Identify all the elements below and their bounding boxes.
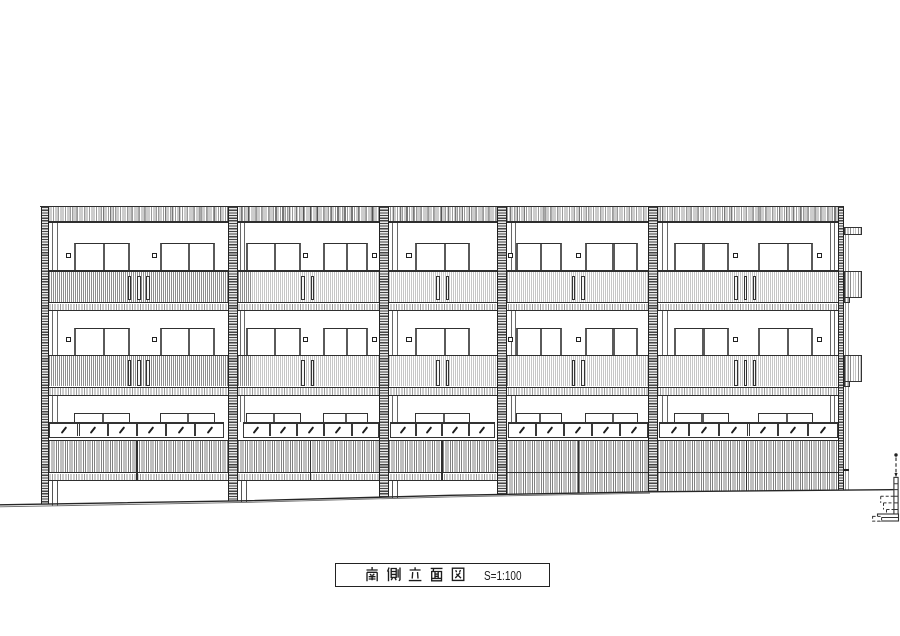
svg-text:S=1:100: S=1:100 [484, 568, 522, 583]
